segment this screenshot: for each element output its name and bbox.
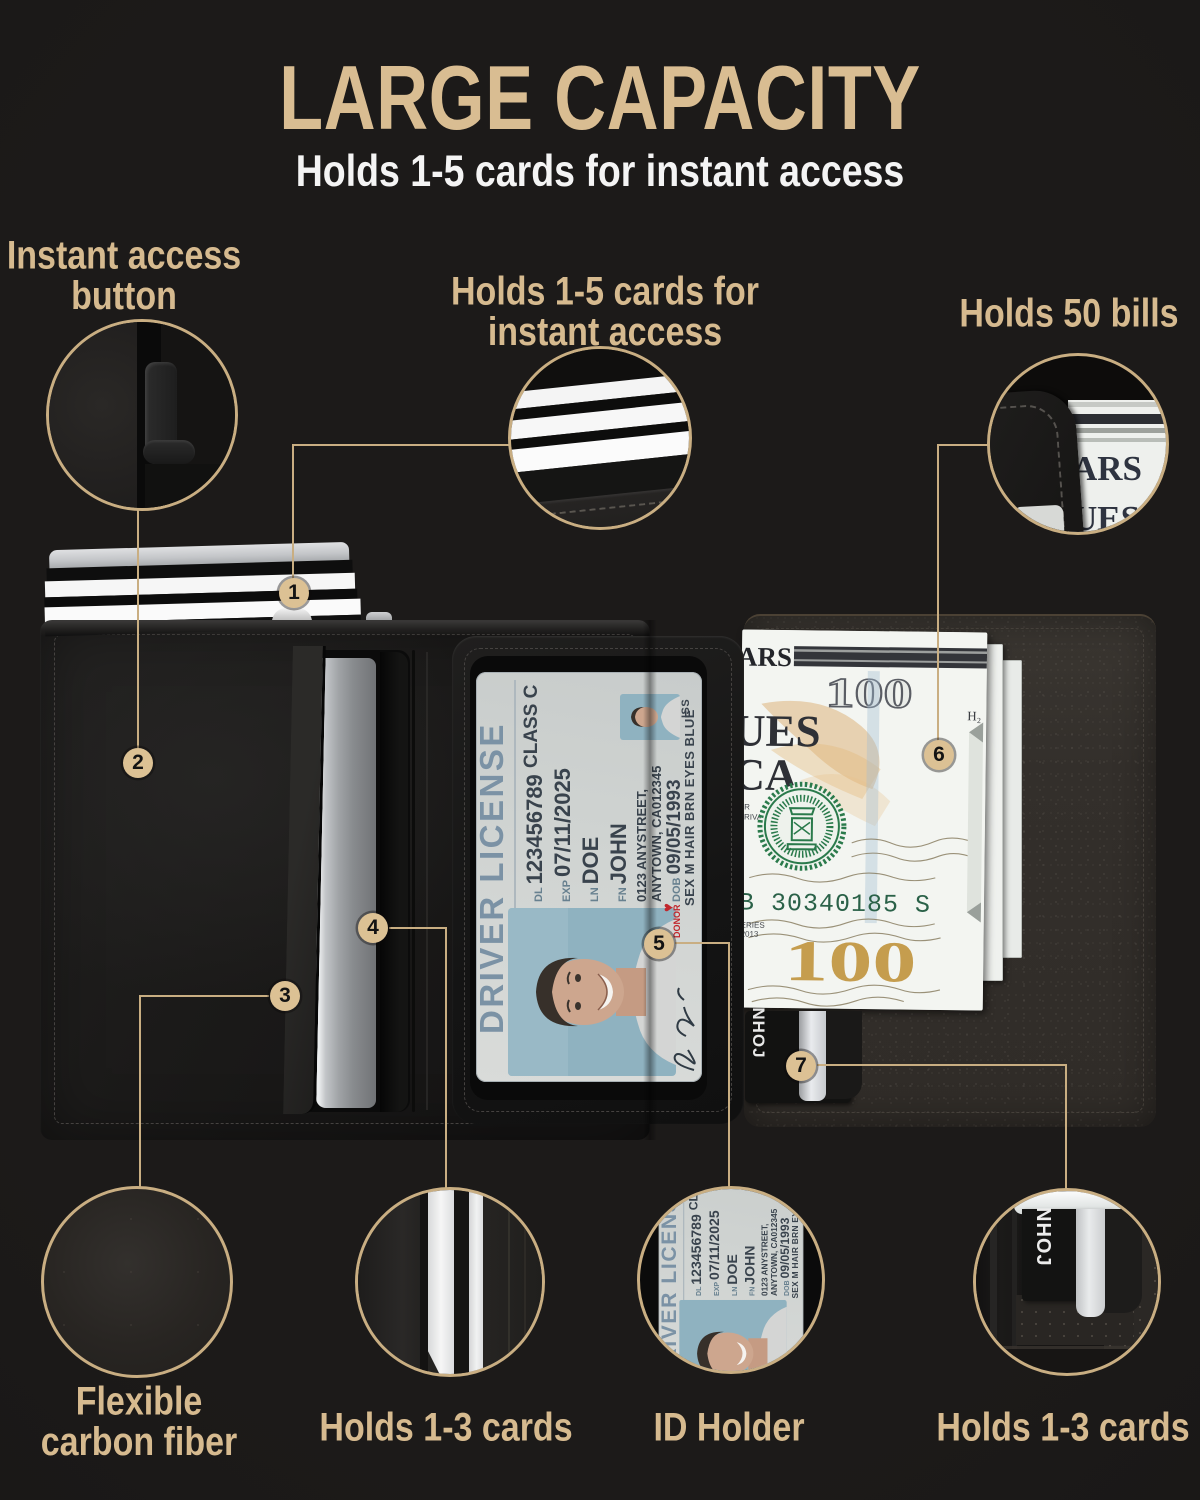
svg-text:B 30340185 S: B 30340185 S	[739, 888, 931, 919]
svg-text:ERIES: ERIES	[741, 921, 765, 930]
svg-text:R: R	[744, 803, 750, 812]
svg-text:ARS: ARS	[738, 641, 792, 672]
svg-text:H₂: H₂	[967, 708, 981, 723]
svg-text:100: 100	[784, 930, 917, 995]
